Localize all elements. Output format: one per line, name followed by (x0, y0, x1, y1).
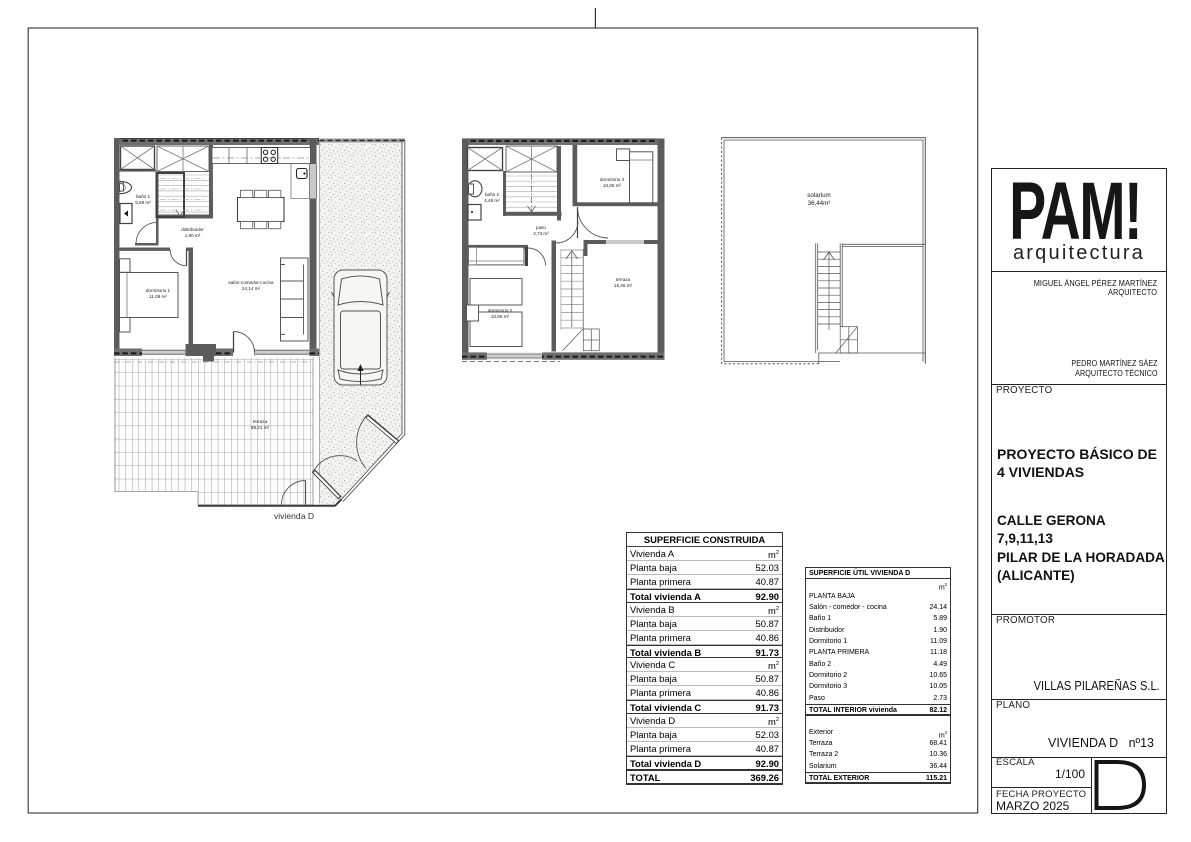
svg-text:5,89 m²: 5,89 m² (135, 200, 151, 205)
svg-text:terraza: terraza (253, 419, 268, 424)
svg-text:salón-comedor-cocina: salón-comedor-cocina (228, 280, 274, 285)
svg-text:4,48 m²: 4,48 m² (484, 198, 500, 203)
svg-text:baño 1: baño 1 (136, 194, 150, 199)
svg-text:11,09 m²: 11,09 m² (149, 294, 167, 299)
svg-text:vivienda D: vivienda D (274, 511, 314, 521)
svg-text:paso: paso (536, 225, 546, 230)
svg-text:68,41 m²: 68,41 m² (251, 425, 270, 430)
svg-text:24,14 m²: 24,14 m² (242, 286, 261, 291)
svg-text:dormitorio 1: dormitorio 1 (146, 288, 171, 293)
svg-text:baño 2: baño 2 (485, 192, 499, 197)
svg-text:36,44m²: 36,44m² (808, 200, 831, 207)
svg-text:solarium: solarium (807, 192, 830, 199)
svg-text:dormitorio 2: dormitorio 2 (488, 308, 513, 313)
svg-text:dormitorio 3: dormitorio 3 (600, 177, 625, 182)
svg-text:16,36 m²: 16,36 m² (614, 283, 633, 288)
svg-text:10,65 m²: 10,65 m² (491, 314, 510, 319)
svg-text:terraza: terraza (616, 277, 631, 282)
svg-text:2,73 m²: 2,73 m² (533, 231, 549, 236)
svg-text:10,05 m²: 10,05 m² (603, 183, 622, 188)
svg-text:1,90 m²: 1,90 m² (185, 233, 201, 238)
svg-text:distribuidor: distribuidor (181, 227, 204, 232)
